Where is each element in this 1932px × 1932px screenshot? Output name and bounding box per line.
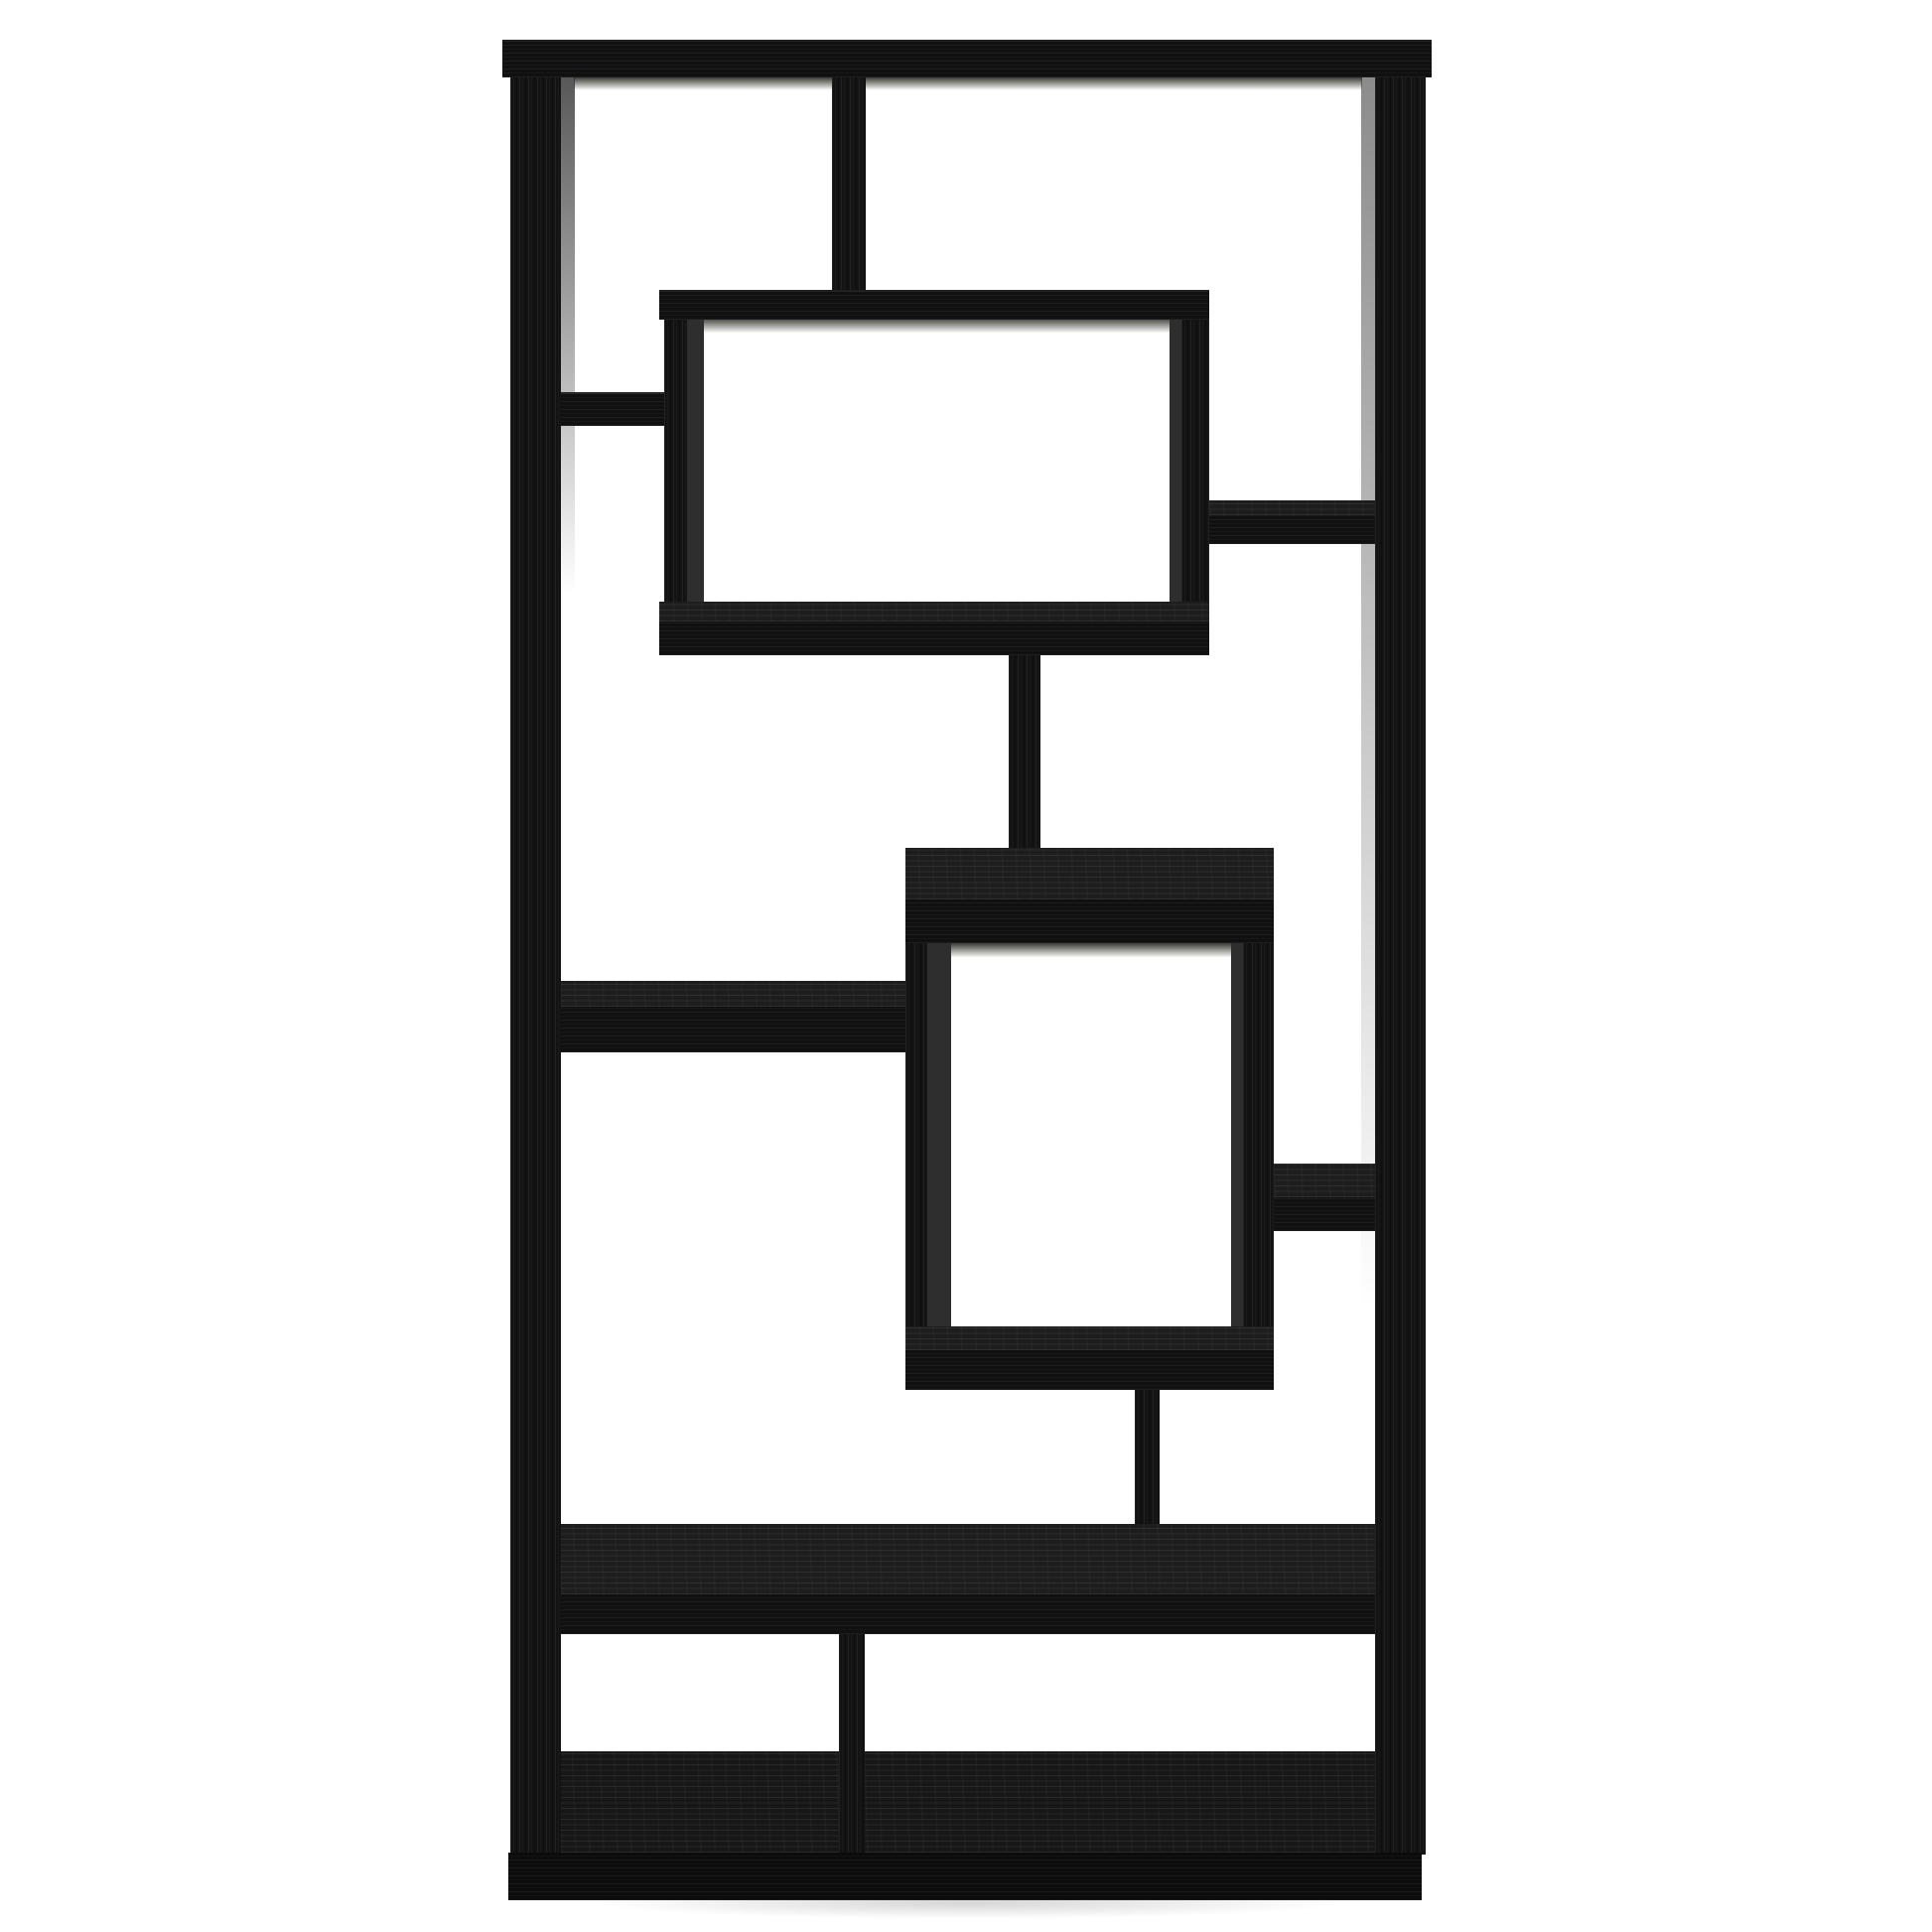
- middle-left-shelf-top: [561, 981, 905, 1007]
- upper-box-top-shelf: [659, 290, 1209, 320]
- lower-center-divider: [1135, 1390, 1160, 1544]
- base-plinth: [508, 1853, 1422, 1900]
- lower-box-top-shelf-top: [905, 848, 1274, 899]
- left-side-panel-inner-edge: [561, 77, 575, 594]
- upper-box-right-wall: [1181, 290, 1209, 655]
- upper-box-left-wall-inner-edge: [687, 290, 704, 655]
- lower-box-bottom-shelf-top: [905, 1326, 1274, 1350]
- left-side-panel: [510, 77, 561, 1855]
- lower-box-top-shelf: [905, 899, 1274, 943]
- upper-left-shelf: [561, 392, 664, 426]
- top-center-divider: [832, 77, 866, 292]
- upper-box-bottom-shelf-top: [659, 602, 1209, 621]
- upper-box-left-wall: [664, 290, 687, 655]
- right-side-panel: [1375, 77, 1426, 1855]
- bottom-long-shelf-top: [561, 1524, 1375, 1594]
- bottom-long-shelf: [561, 1594, 1375, 1634]
- bottom-row-divider: [839, 1634, 865, 1857]
- middle-center-divider: [1009, 655, 1040, 862]
- top-panel-underside-shadow: [574, 77, 1362, 91]
- upper-box-bottom-shelf: [659, 621, 1209, 655]
- lower-right-shelf: [1274, 1197, 1375, 1231]
- lower-box-interior-shadow: [951, 943, 1231, 959]
- right-side-panel-inner-edge: [1361, 77, 1375, 1309]
- upper-right-shelf: [1209, 515, 1375, 544]
- lower-right-shelf-top: [1274, 1164, 1375, 1197]
- upper-box-interior-shadow: [704, 318, 1170, 335]
- upper-box-right-wall-inner-edge: [1170, 290, 1181, 655]
- base-floor-surface: [561, 1751, 1375, 1853]
- bookcase-product-photo: [0, 0, 1932, 1932]
- upper-right-shelf-top: [1209, 500, 1375, 515]
- lower-box-bottom-shelf: [905, 1350, 1274, 1390]
- top-panel: [502, 40, 1432, 77]
- middle-left-shelf: [561, 1007, 905, 1052]
